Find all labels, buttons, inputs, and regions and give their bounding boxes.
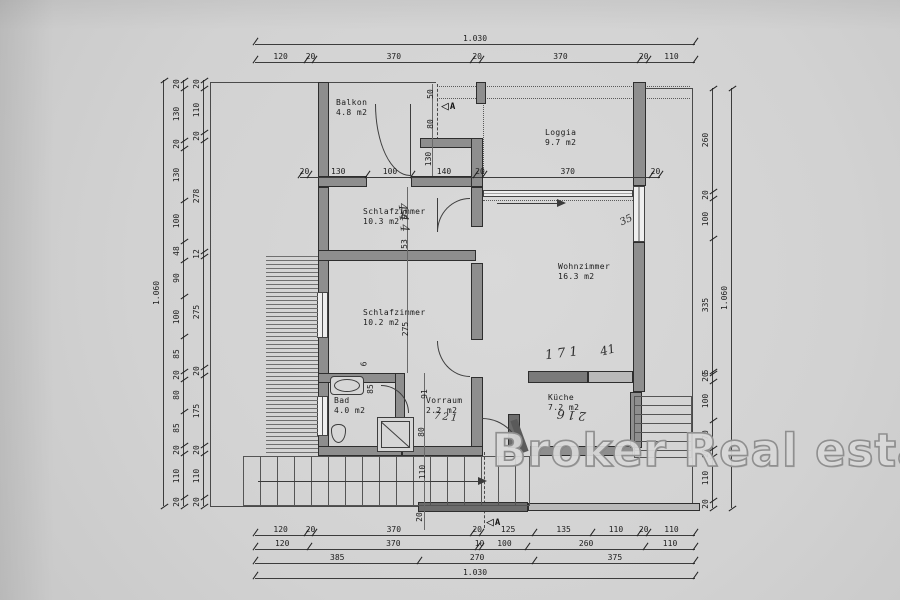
- dim-label: 125: [501, 526, 515, 534]
- dim-label: 120: [273, 526, 287, 534]
- room-label-bad: Bad 4.0 m2: [334, 396, 365, 416]
- wall-between-bedrooms: [318, 250, 476, 261]
- room-label-schlafzimmer1: Schlafzimmer 10.3 m2: [363, 207, 426, 227]
- room-name: Küche: [548, 393, 579, 403]
- dim-label: 110: [664, 526, 678, 534]
- dim-label: 20: [702, 372, 710, 382]
- dim-label: 120: [275, 540, 289, 548]
- dim-chain-mid-segments: 201301001402037020: [300, 177, 660, 178]
- dim-label: 110: [664, 53, 678, 61]
- room-area: 10.2 m2: [363, 318, 426, 328]
- dim-label: 270: [470, 554, 484, 562]
- room-name: Loggia: [545, 128, 576, 138]
- dim-label: 110: [419, 465, 427, 479]
- stair-arrowhead-icon: [478, 477, 487, 485]
- dim-label: 20: [651, 168, 661, 176]
- dim-label: 275: [402, 322, 410, 336]
- section-arrow-icon: ◁: [486, 516, 494, 529]
- dim-label: 20: [173, 497, 181, 507]
- dim-label: 385: [330, 554, 344, 562]
- bathtub-inner-icon: [334, 379, 360, 392]
- dim-label: 110: [193, 103, 201, 117]
- sliding-door-arrowhead-icon: [557, 199, 566, 207]
- dim-label: 80: [427, 119, 435, 129]
- dim-label: 48: [173, 246, 181, 256]
- dim-chain-top-total: 1.030: [255, 44, 695, 45]
- room-area: 16.3 m2: [558, 272, 610, 282]
- dim-label: 100: [173, 310, 181, 324]
- room-label-balkon: Balkon 4.8 m2: [336, 98, 367, 118]
- dim-label: 20: [193, 79, 201, 89]
- dim-label: 20: [173, 79, 181, 89]
- section-marker-label: A: [495, 518, 500, 528]
- dim-label: 85: [173, 424, 181, 434]
- room-name: Wohnzimmer: [558, 262, 610, 272]
- dim-label: 20: [193, 131, 201, 141]
- handwriting-note: 444: [396, 202, 413, 235]
- dim-label: 370: [386, 540, 400, 548]
- dim-label: 370: [553, 53, 567, 61]
- dim-label: 100: [702, 394, 710, 408]
- door-arc-bedroom2: [437, 341, 470, 377]
- dim-label: 278: [193, 189, 201, 203]
- wall-exterior-bottom-light: [528, 503, 700, 511]
- dim-label: 20: [173, 445, 181, 455]
- handwriting-note: 171: [544, 344, 582, 363]
- sliding-door-arrow: [497, 203, 557, 204]
- wall-balcony-left: [318, 82, 329, 178]
- handwriting-note: 216: [553, 407, 586, 424]
- dim-label: 370: [387, 526, 401, 534]
- dim-chain-bottom-row1: 120203702012513511020110: [255, 535, 695, 536]
- handwriting-note: 721: [433, 411, 459, 425]
- room-area: 4.0 m2: [334, 406, 365, 416]
- dim-label: 110: [173, 469, 181, 483]
- dim-label: 20: [702, 499, 710, 509]
- dim-label: 85: [173, 349, 181, 359]
- dim-label: 20: [702, 190, 710, 200]
- dim-label: 130: [425, 152, 433, 166]
- dim-chain-bottom-total: 1.030: [255, 578, 695, 579]
- neighbor-hatch-area: [266, 256, 318, 456]
- dim-chain-top-segments: 120203702037020110: [255, 62, 695, 63]
- dim-label: 130: [173, 167, 181, 181]
- dim-label: 90: [173, 274, 181, 284]
- dim-label: 260: [579, 540, 593, 548]
- dim-label: 20: [193, 445, 201, 455]
- kitchen-counter-light: [588, 371, 633, 383]
- dim-label: 335: [702, 298, 710, 312]
- dim-label: 175: [193, 403, 201, 417]
- dim-label: 53: [401, 239, 409, 249]
- dim-label: 20: [173, 140, 181, 150]
- handwriting-note: 41: [599, 341, 617, 358]
- floor-plan-scan: ◁ A ◁ A Balkon 4.8 m2 Loggia 9.7 m2 Schl…: [0, 0, 900, 600]
- room-label-loggia: Loggia 9.7 m2: [545, 128, 576, 148]
- door-arc-balcony: [375, 104, 410, 176]
- dim-label: 370: [561, 168, 575, 176]
- dim-label: 275: [193, 305, 201, 319]
- dim-label: 120: [273, 53, 287, 61]
- watermark-text: Broker Real estate: [492, 424, 900, 477]
- dim-label: 20: [173, 370, 181, 380]
- dim-chain-left-inner: 201102027812275201752011020: [203, 80, 204, 506]
- room-name: Bad: [334, 396, 365, 406]
- room-name: Schlafzimmer: [363, 207, 426, 217]
- dim-chain-left-outer: 20130201301004890100852080852011020: [183, 80, 184, 506]
- dim-label: 1.060: [721, 286, 729, 310]
- room-name: Vorraum: [426, 396, 463, 406]
- wall-bottom-vorraum: [402, 446, 483, 456]
- kitchen-counter-dark: [528, 371, 588, 383]
- roof-dashed-line: [437, 86, 690, 87]
- room-area: 4.8 m2: [336, 108, 367, 118]
- dim-label: 1.030: [463, 35, 487, 43]
- room-name: Schlafzimmer: [363, 308, 426, 318]
- dim-label: 1.030: [463, 569, 487, 577]
- window-bedroom2: [317, 292, 328, 338]
- wall-corridor-a: [471, 187, 483, 227]
- dim-label: 20: [193, 497, 201, 507]
- window-livingroom: [633, 186, 645, 242]
- dim-label: 110: [193, 469, 201, 483]
- dim-chain-bottom-row3: 385270375: [255, 563, 695, 564]
- section-marker-top: ◁ A: [441, 100, 455, 113]
- dim-label: 91: [421, 389, 429, 399]
- dim-label: 100: [497, 540, 511, 548]
- pillar-top: [476, 82, 486, 104]
- dim-label: 110: [609, 526, 623, 534]
- dim-label: 85: [367, 384, 375, 394]
- dim-label: 130: [331, 168, 345, 176]
- plan-outline-left: [210, 82, 211, 507]
- door-leaf-balcony: [410, 104, 411, 176]
- dim-label: 140: [437, 168, 451, 176]
- dim-label: 370: [387, 53, 401, 61]
- wall-loggia-right: [633, 82, 646, 186]
- dim-label: 80: [173, 390, 181, 400]
- toilet-icon: [331, 424, 346, 443]
- dim-label: 130: [173, 107, 181, 121]
- dim-label: 6: [360, 362, 368, 367]
- dim-label: 50: [427, 89, 435, 99]
- dim-label: 100: [383, 168, 397, 176]
- roof-dashed-line: [437, 98, 690, 99]
- door-arc-bedroom1: [437, 198, 470, 232]
- dim-label: 20: [193, 367, 201, 377]
- dim-chain-bottom-row2: 12037010100260110: [255, 549, 695, 550]
- wall-loggia-left-stub-v: [471, 138, 483, 187]
- dim-label: 260: [702, 132, 710, 146]
- dim-label: 20: [416, 512, 424, 522]
- sliding-door-loggia: [483, 190, 633, 197]
- dim-label: 1.060: [153, 281, 161, 305]
- section-marker-bottom: ◁ A: [486, 516, 500, 529]
- room-label-wohnzimmer: Wohnzimmer 16.3 m2: [558, 262, 610, 282]
- room-area: 9.7 m2: [545, 138, 576, 148]
- room-label-schlafzimmer2: Schlafzimmer 10.2 m2: [363, 308, 426, 328]
- wall-corridor-b: [471, 263, 483, 340]
- window-bath: [317, 396, 328, 436]
- dim-label: 80: [418, 427, 426, 437]
- dim-label: 110: [663, 540, 677, 548]
- section-arrow-icon: ◁: [441, 100, 449, 113]
- section-marker-label: A: [450, 102, 455, 112]
- room-name: Balkon: [336, 98, 367, 108]
- room-area: 10.3 m2: [363, 217, 426, 227]
- section-line-top: [437, 84, 438, 140]
- dim-label: 135: [556, 526, 570, 534]
- wall-livingroom-right: [633, 242, 645, 392]
- dim-label: 100: [173, 214, 181, 228]
- dim-label: 375: [608, 554, 622, 562]
- dim-label: 100: [702, 212, 710, 226]
- stair-arrow: [258, 481, 480, 482]
- plan-outline-topright: [645, 88, 693, 89]
- dim-chain-left-total: 1.060: [163, 80, 164, 506]
